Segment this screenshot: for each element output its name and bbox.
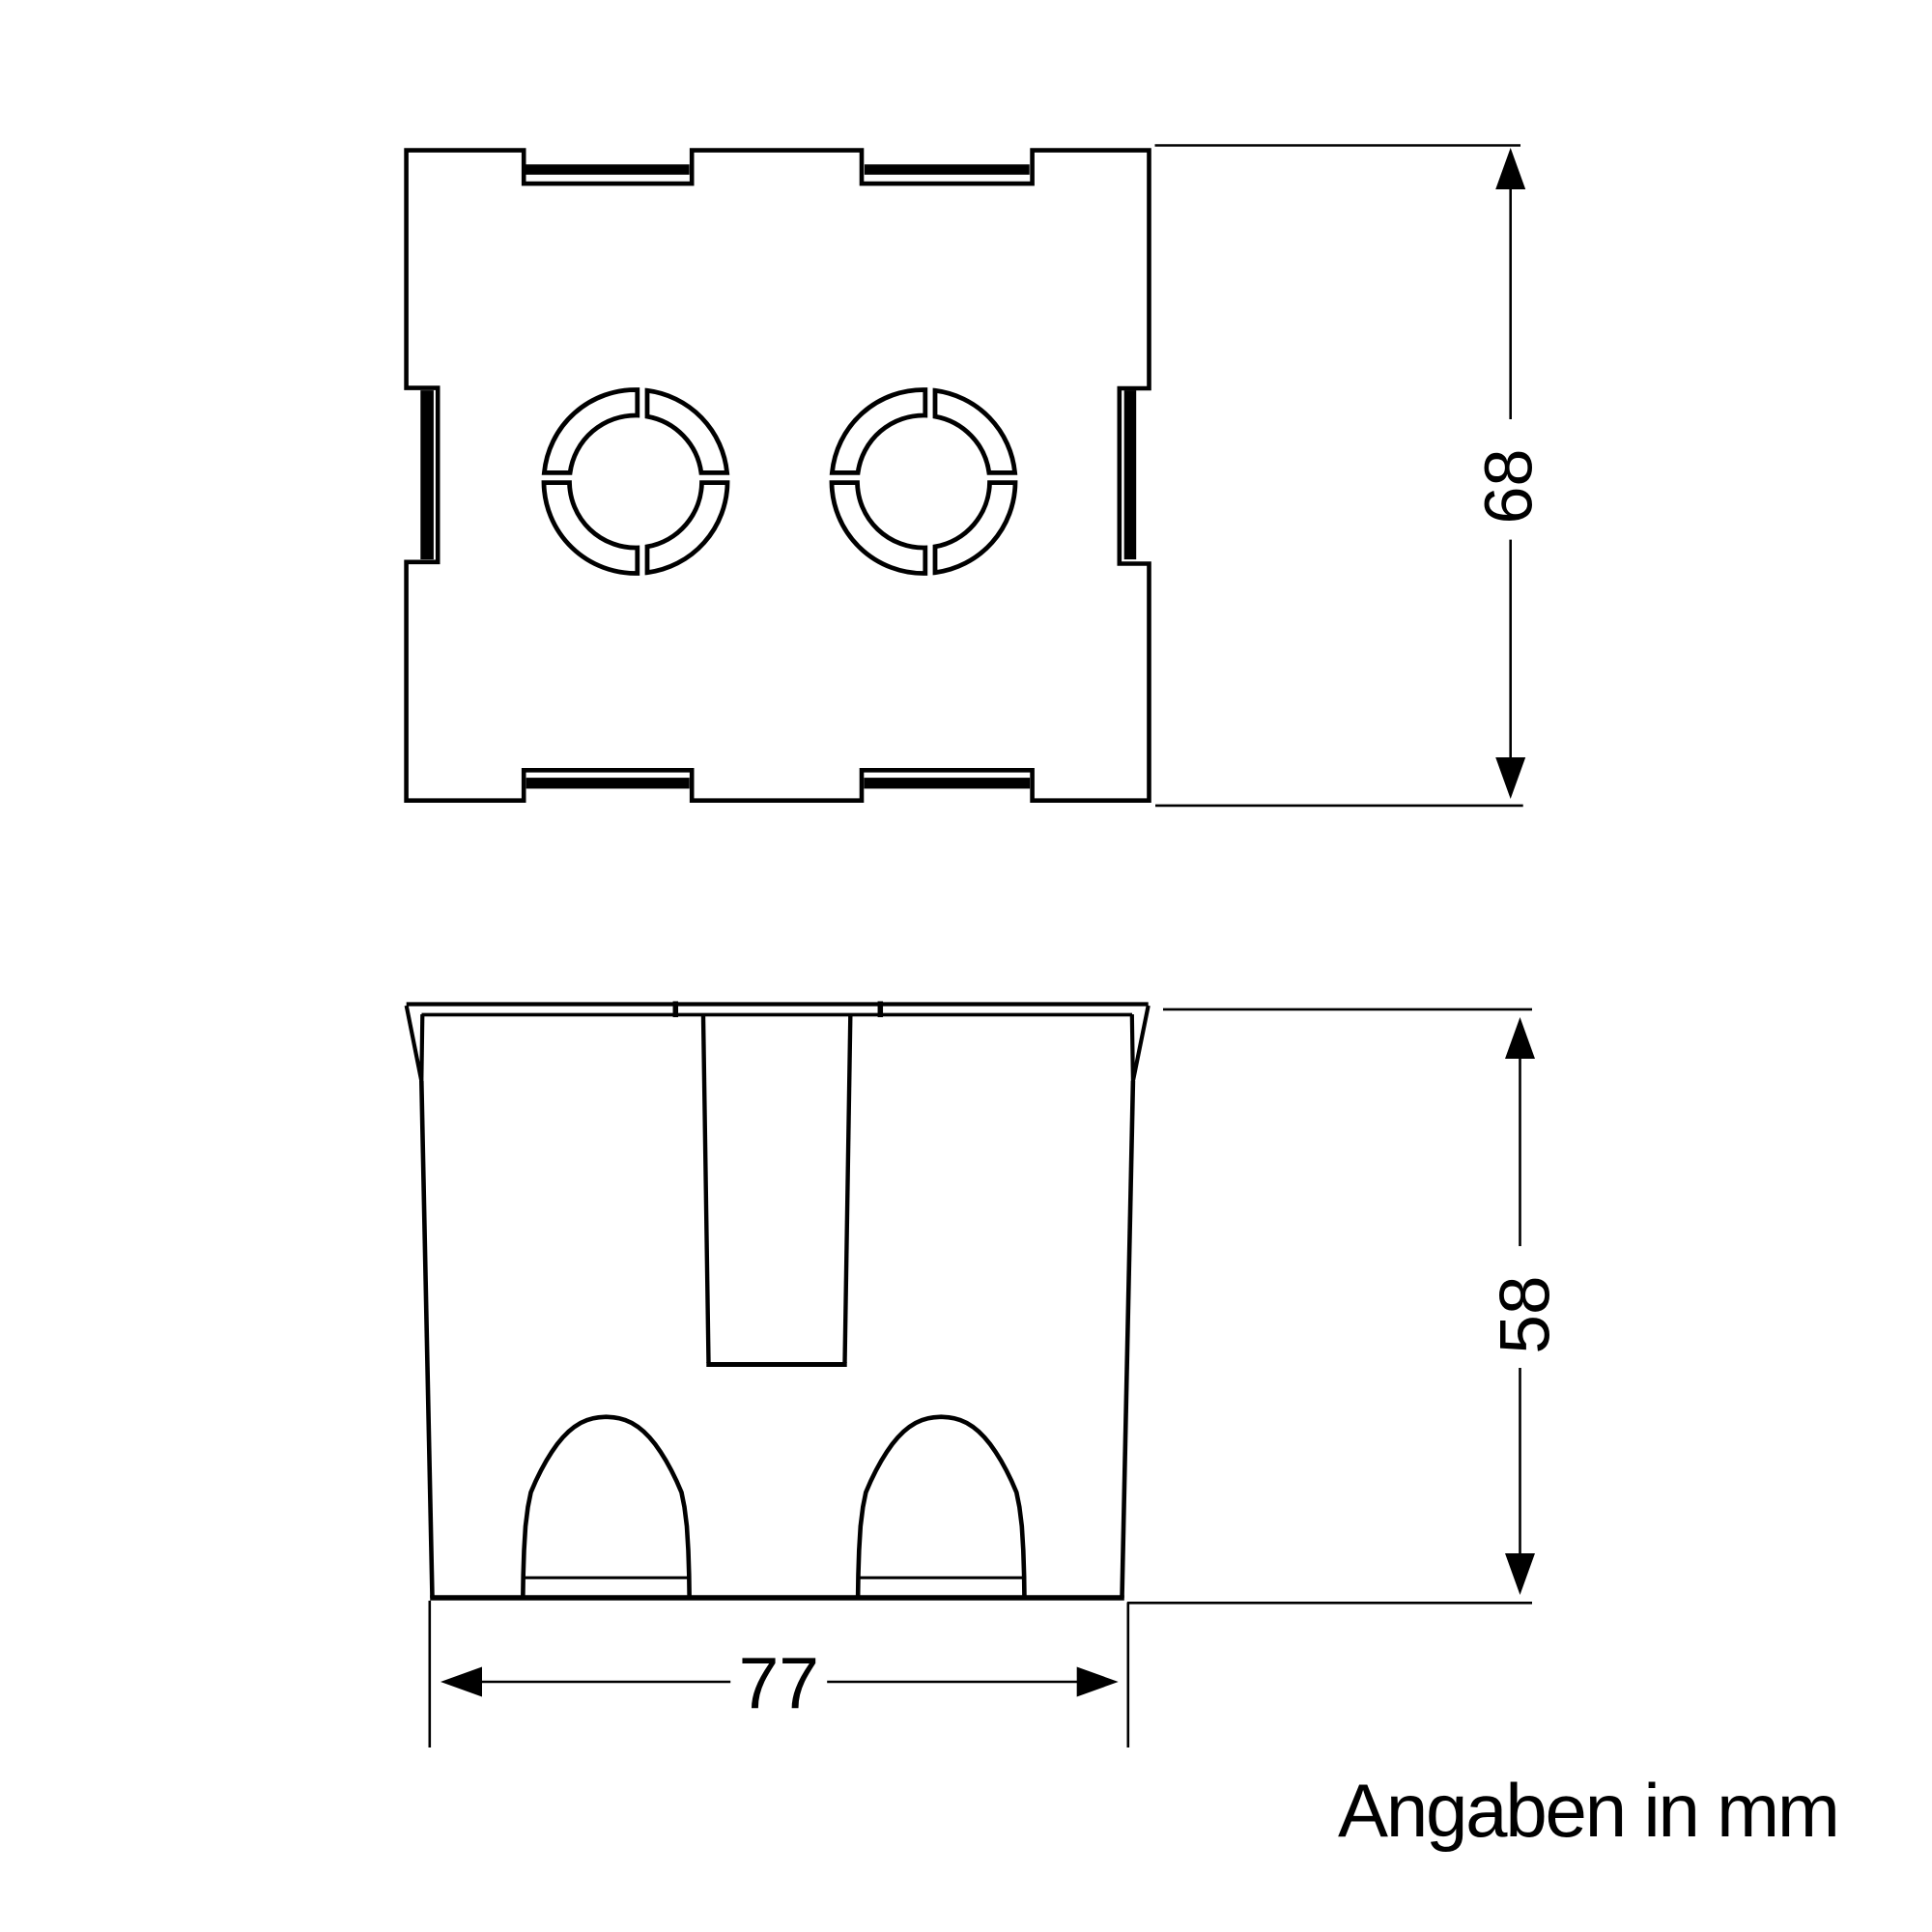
svg-text:68: 68 [1471, 449, 1547, 525]
svg-text:58: 58 [1487, 1275, 1565, 1353]
svg-text:Angaben in mm: Angaben in mm [1338, 1768, 1838, 1853]
svg-text:77: 77 [739, 1642, 819, 1723]
